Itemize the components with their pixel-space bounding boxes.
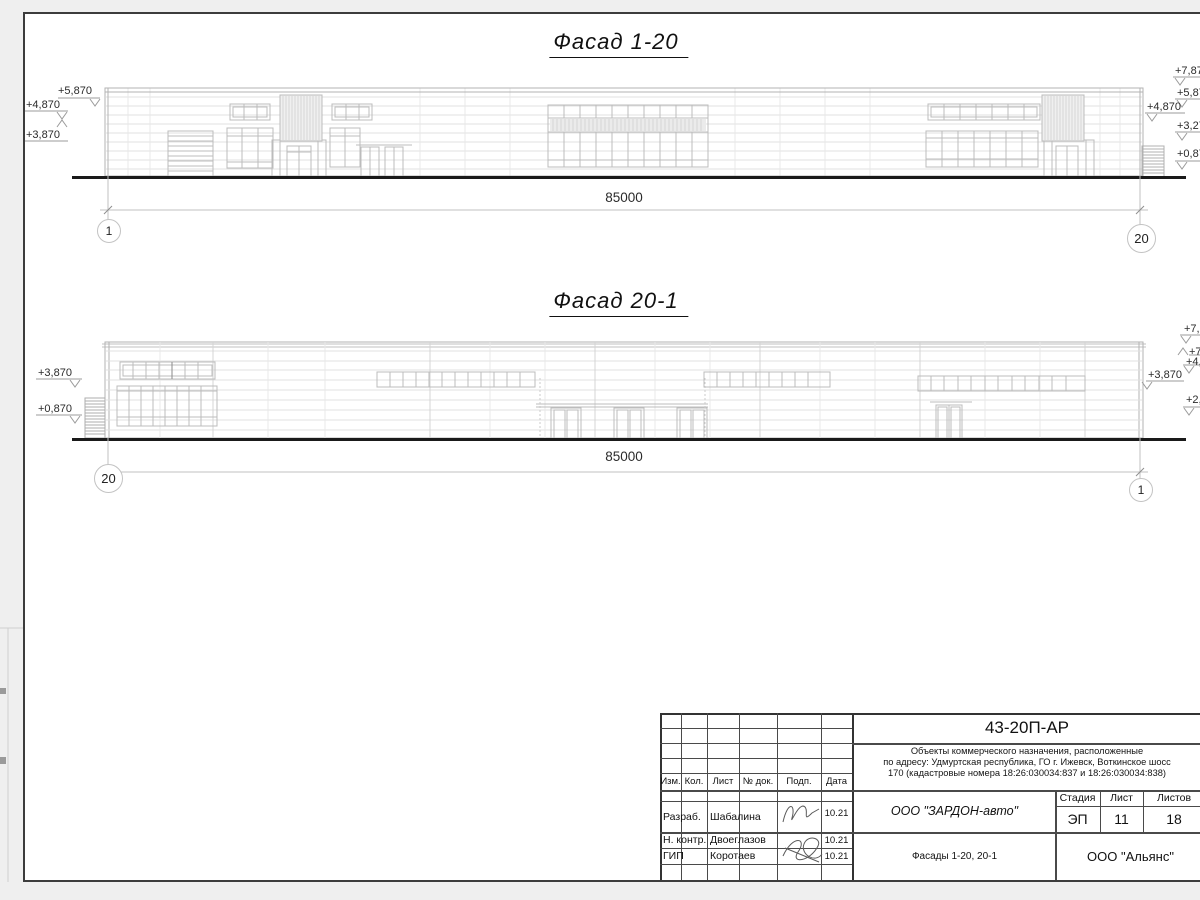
drawing-sheet: Фасад 1-20 Фасад 20-1 85000 85000 +5,870… — [0, 0, 1200, 900]
left-edge-stamp — [0, 620, 23, 882]
sheet-frame — [23, 12, 1200, 882]
edge-stamp-mark — [0, 757, 6, 764]
edge-stamp-mark — [0, 688, 6, 694]
